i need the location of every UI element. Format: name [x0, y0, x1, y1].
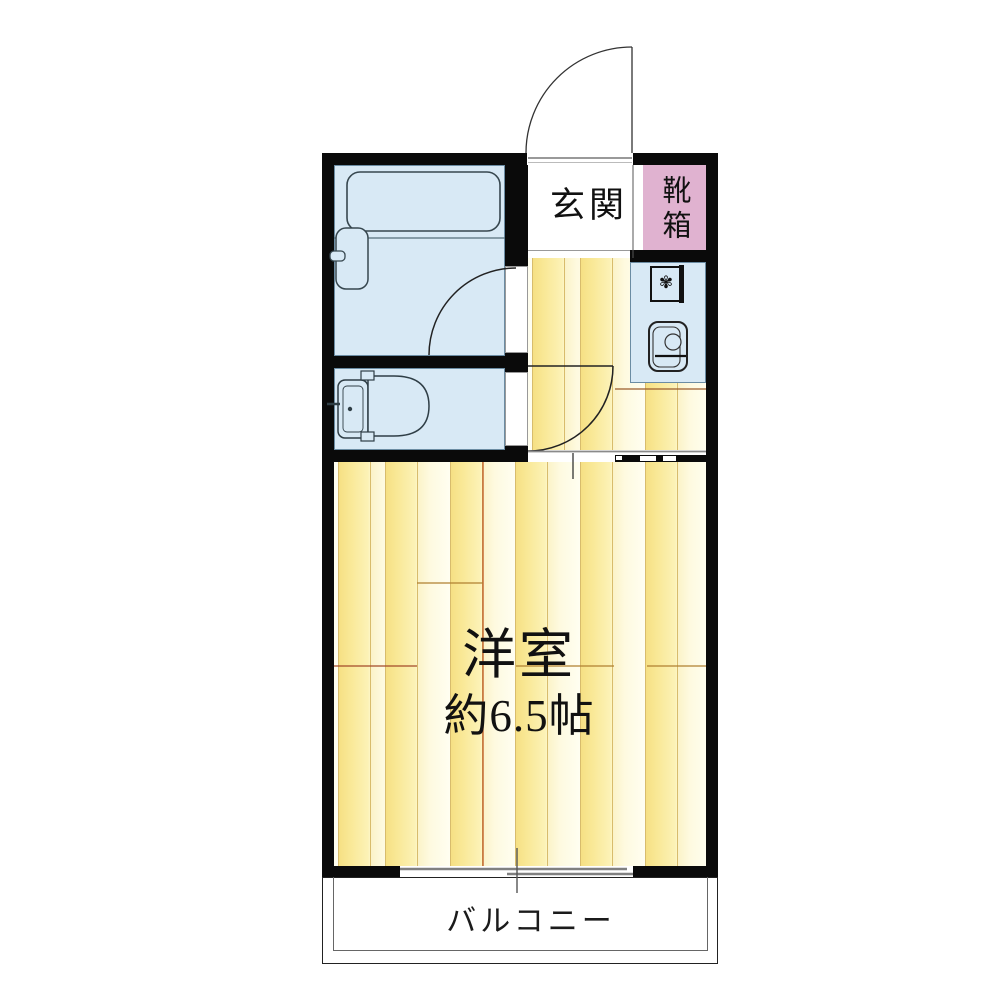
entrance-door-arc [526, 47, 632, 153]
burner-icon: ✾ [655, 273, 677, 293]
stove-side-bar [679, 265, 684, 303]
toilet-seat-tab-top [361, 371, 374, 380]
toilet-dot [348, 407, 352, 411]
sink-faucet [665, 334, 681, 350]
plan-linework [0, 0, 1000, 1000]
genkan-label: 玄関 [536, 177, 642, 228]
shoe-box-label: 靴箱 [657, 170, 691, 250]
main-room-name: 洋室 [419, 610, 619, 689]
bathroom-door-arc [429, 268, 516, 355]
interior-door-arc [528, 366, 613, 451]
toilet-bowl [368, 376, 429, 436]
bathtub [347, 172, 500, 231]
toilet-tank [338, 380, 368, 438]
floor-plan-canvas: 玄関 靴箱 ✾ 洋室 約6.5帖 バルコニー [0, 0, 1000, 1000]
toilet-seat-tab-bottom [361, 432, 374, 441]
washbasin-knob [330, 251, 345, 261]
main-room-size: 約6.5帖 [394, 679, 644, 744]
balcony-label: バルコニー [406, 896, 656, 940]
